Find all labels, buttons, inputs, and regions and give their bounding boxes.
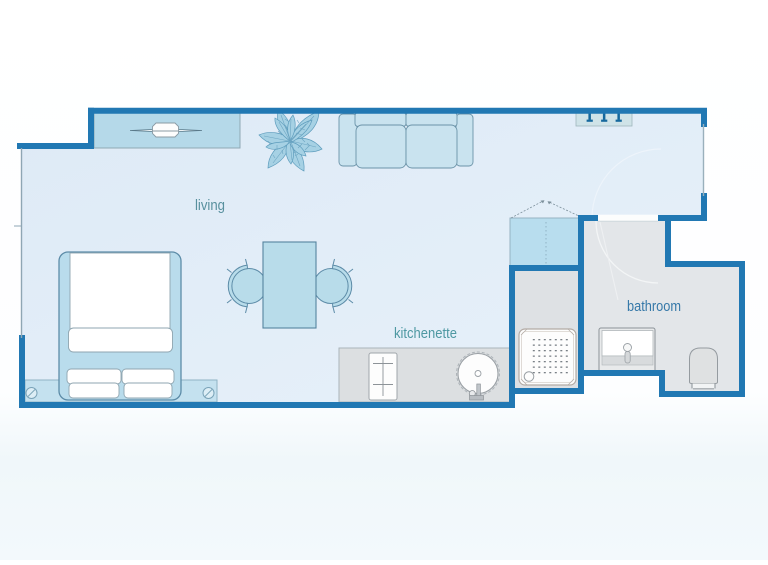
svg-text:living: living [195,197,225,214]
svg-text:bathroom: bathroom [627,298,681,315]
svg-text:kitchenette: kitchenette [394,325,457,342]
